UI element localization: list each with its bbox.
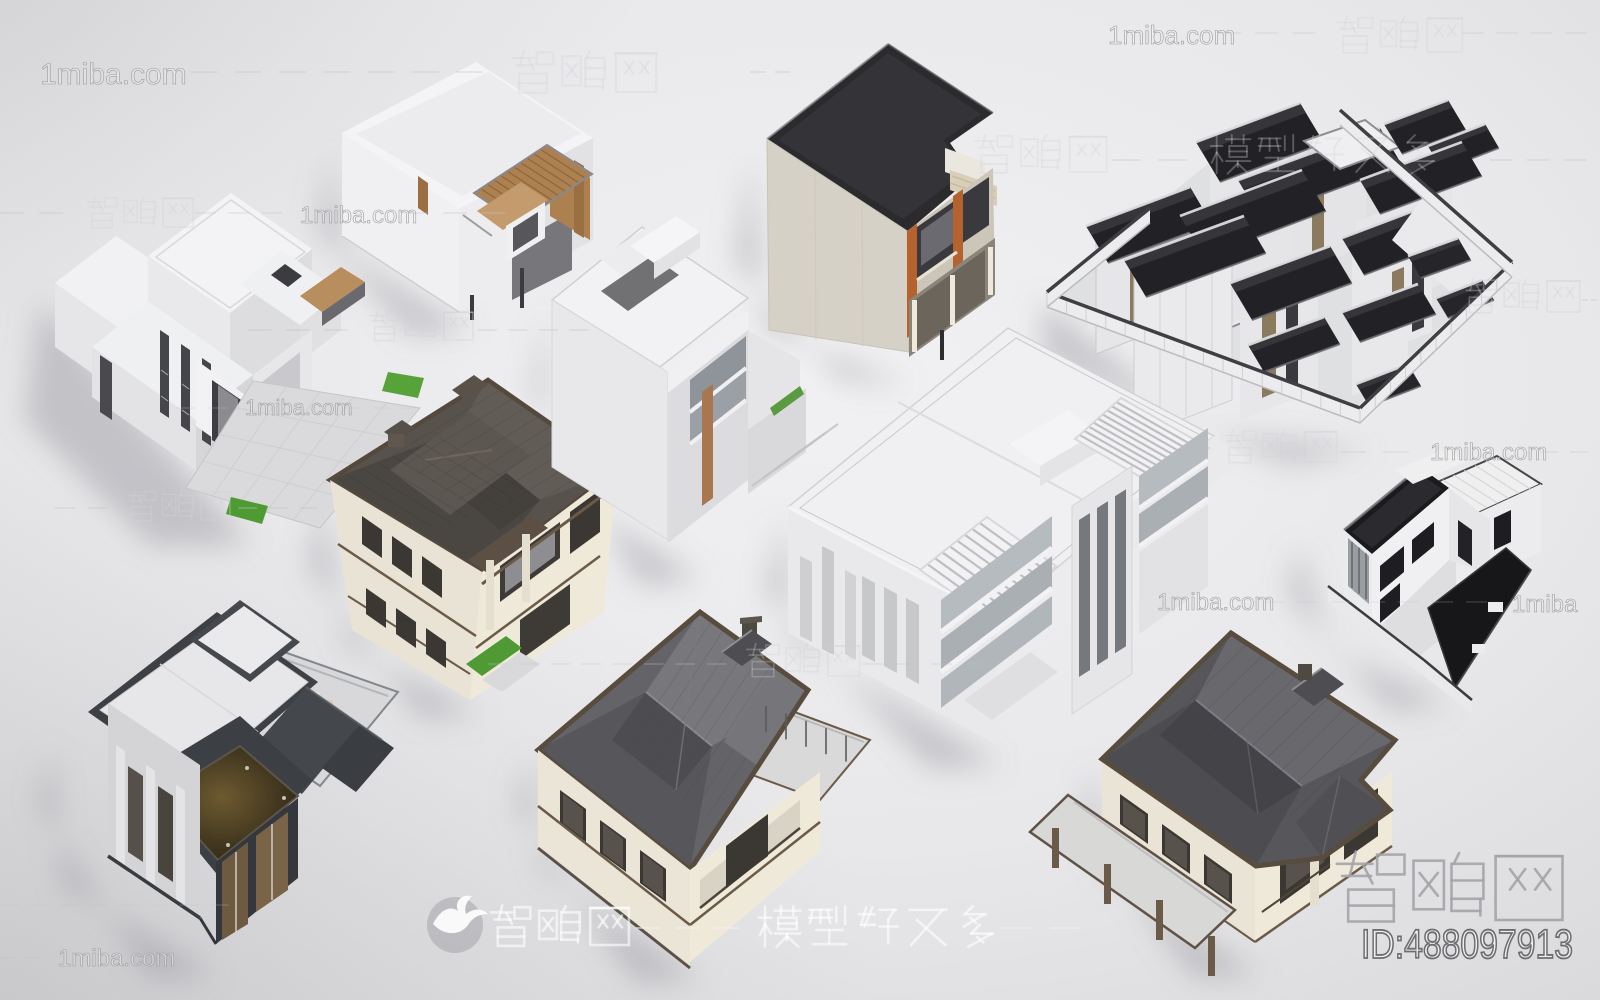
svg-text:1miba.com: 1miba.com [1430, 439, 1547, 466]
svg-text:1miba.com: 1miba.com [40, 58, 187, 91]
svg-text:1miba.com: 1miba.com [1157, 589, 1274, 616]
svg-text:1miba.com: 1miba.com [245, 395, 353, 420]
svg-text:1miba.com: 1miba.com [300, 202, 417, 229]
svg-text:1miba: 1miba [1512, 591, 1578, 618]
svg-text:ID:488097913: ID:488097913 [1361, 921, 1573, 967]
svg-text:1miba.com: 1miba.com [1108, 20, 1235, 50]
svg-text:1miba.com: 1miba.com [58, 945, 175, 972]
